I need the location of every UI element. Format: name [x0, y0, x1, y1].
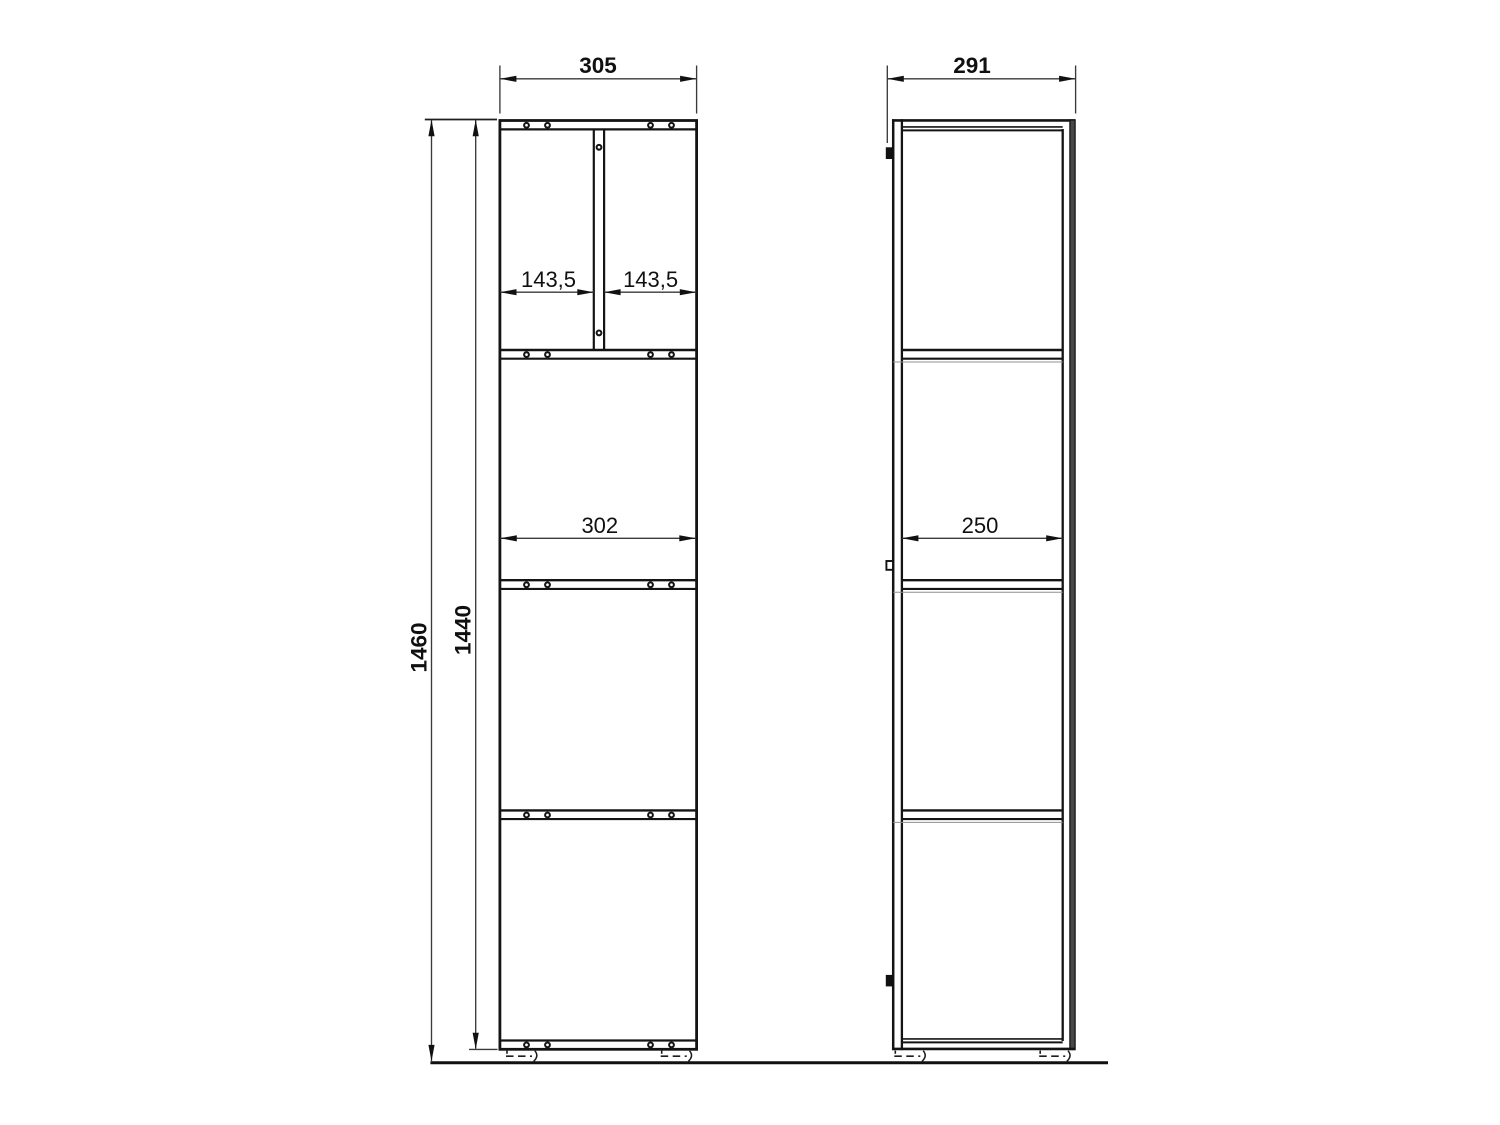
svg-text:250: 250 — [962, 513, 999, 538]
svg-text:143,5: 143,5 — [521, 267, 576, 292]
svg-text:1460: 1460 — [407, 622, 432, 672]
svg-text:302: 302 — [581, 513, 618, 538]
svg-text:143,5: 143,5 — [623, 267, 678, 292]
svg-text:305: 305 — [579, 53, 617, 78]
svg-text:1440: 1440 — [451, 605, 476, 655]
svg-text:291: 291 — [953, 53, 991, 78]
